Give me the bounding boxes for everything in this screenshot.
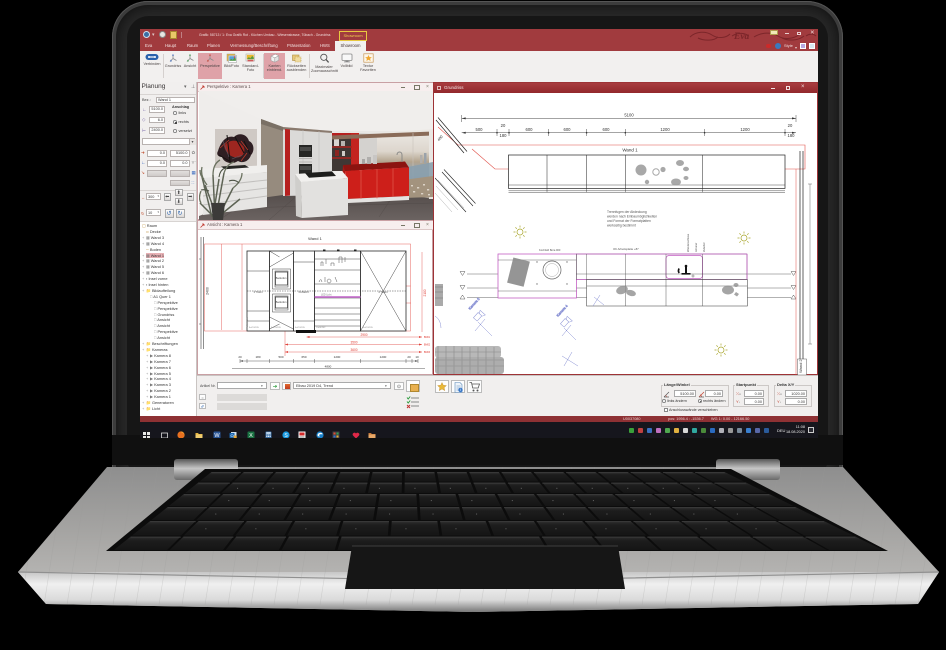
svg-text:600: 600	[526, 127, 534, 132]
svg-text:20: 20	[238, 355, 242, 359]
svg-text:O: O	[230, 433, 233, 438]
svg-text:500: 500	[278, 355, 283, 359]
svg-text:Cx60/202: Cx60/202	[316, 327, 326, 329]
svg-text:Trennfugen der Abdeckung: Trennfugen der Abdeckung	[607, 210, 647, 214]
svg-text:Wand 2: Wand 2	[798, 359, 803, 373]
svg-text:X: X	[249, 433, 253, 438]
svg-text:1200: 1200	[333, 355, 340, 359]
svg-text:BM02: BM02	[423, 344, 430, 347]
svg-text:Armatur: Armatur	[694, 243, 698, 252]
svg-text:Backofen: Backofen	[275, 300, 286, 304]
svg-text:180: 180	[500, 133, 508, 138]
svg-text:Eva: Eva	[733, 32, 750, 41]
svg-text:Kühlschr.: Kühlschr.	[298, 290, 309, 294]
svg-text:3500: 3500	[350, 341, 357, 345]
svg-text:1200: 1200	[379, 355, 386, 359]
svg-text:und Format der Formatplatten: und Format der Formatplatten	[607, 219, 651, 223]
svg-text:werden nach Einbaumöglichkeite: werden nach Einbaumöglichkeiten	[607, 215, 657, 219]
svg-text:2100: 2100	[423, 289, 427, 296]
svg-text:400: 400	[437, 135, 444, 142]
svg-text:BM01: BM01	[423, 336, 430, 339]
svg-text:5100: 5100	[624, 113, 634, 118]
svg-text:Kochfeld Bora 900: Kochfeld Bora 900	[539, 248, 561, 252]
svg-text:LED Licht: LED Licht	[321, 294, 332, 297]
svg-text:2900: 2900	[360, 333, 367, 337]
svg-text:6a/70/195: 6a/70/195	[249, 327, 260, 329]
svg-text:W: W	[214, 433, 220, 438]
svg-text:Backofen: Backofen	[275, 276, 286, 280]
svg-text:20: 20	[501, 123, 506, 128]
svg-text:3600: 3600	[350, 348, 357, 352]
svg-text:500: 500	[476, 127, 484, 132]
svg-text:2 Türen: 2 Türen	[378, 290, 387, 294]
svg-text:6a/70/195: 6a/70/195	[295, 327, 306, 329]
svg-text:20: 20	[407, 355, 411, 359]
svg-text:werkseitig bestimmt: werkseitig bestimmt	[607, 224, 636, 228]
svg-text:1 Türen: 1 Türen	[253, 290, 262, 294]
svg-text:650: 650	[301, 355, 306, 359]
svg-text:1200: 1200	[660, 127, 670, 132]
svg-text:Wand 1: Wand 1	[308, 236, 322, 241]
svg-text:BM03: BM03	[423, 351, 430, 354]
svg-text:Wand 1: Wand 1	[622, 148, 638, 153]
svg-text:OK Arbeitsplatte +87: OK Arbeitsplatte +87	[613, 247, 639, 251]
svg-text:1200: 1200	[740, 127, 750, 132]
svg-text:2400: 2400	[205, 287, 209, 295]
svg-text:20: 20	[788, 123, 793, 128]
svg-text:600: 600	[603, 127, 611, 132]
svg-text:Zubehör: Zubehör	[702, 242, 706, 252]
svg-text:180: 180	[788, 133, 796, 138]
svg-text:6a/70/195: 6a/70/195	[363, 327, 374, 329]
svg-text:600: 600	[564, 127, 572, 132]
svg-text:Kamera 4: Kamera 4	[556, 304, 569, 318]
svg-text:6a/70/195: 6a/70/195	[247, 316, 249, 327]
svg-text:Wandanschluss: Wandanschluss	[686, 233, 690, 252]
svg-text:10: 10	[415, 355, 419, 359]
svg-text:5a/70/195: 5a/70/195	[271, 327, 282, 329]
svg-text:180: 180	[255, 355, 260, 359]
svg-text:Kamera 5: Kamera 5	[468, 297, 481, 311]
svg-text:4800: 4800	[324, 365, 331, 369]
